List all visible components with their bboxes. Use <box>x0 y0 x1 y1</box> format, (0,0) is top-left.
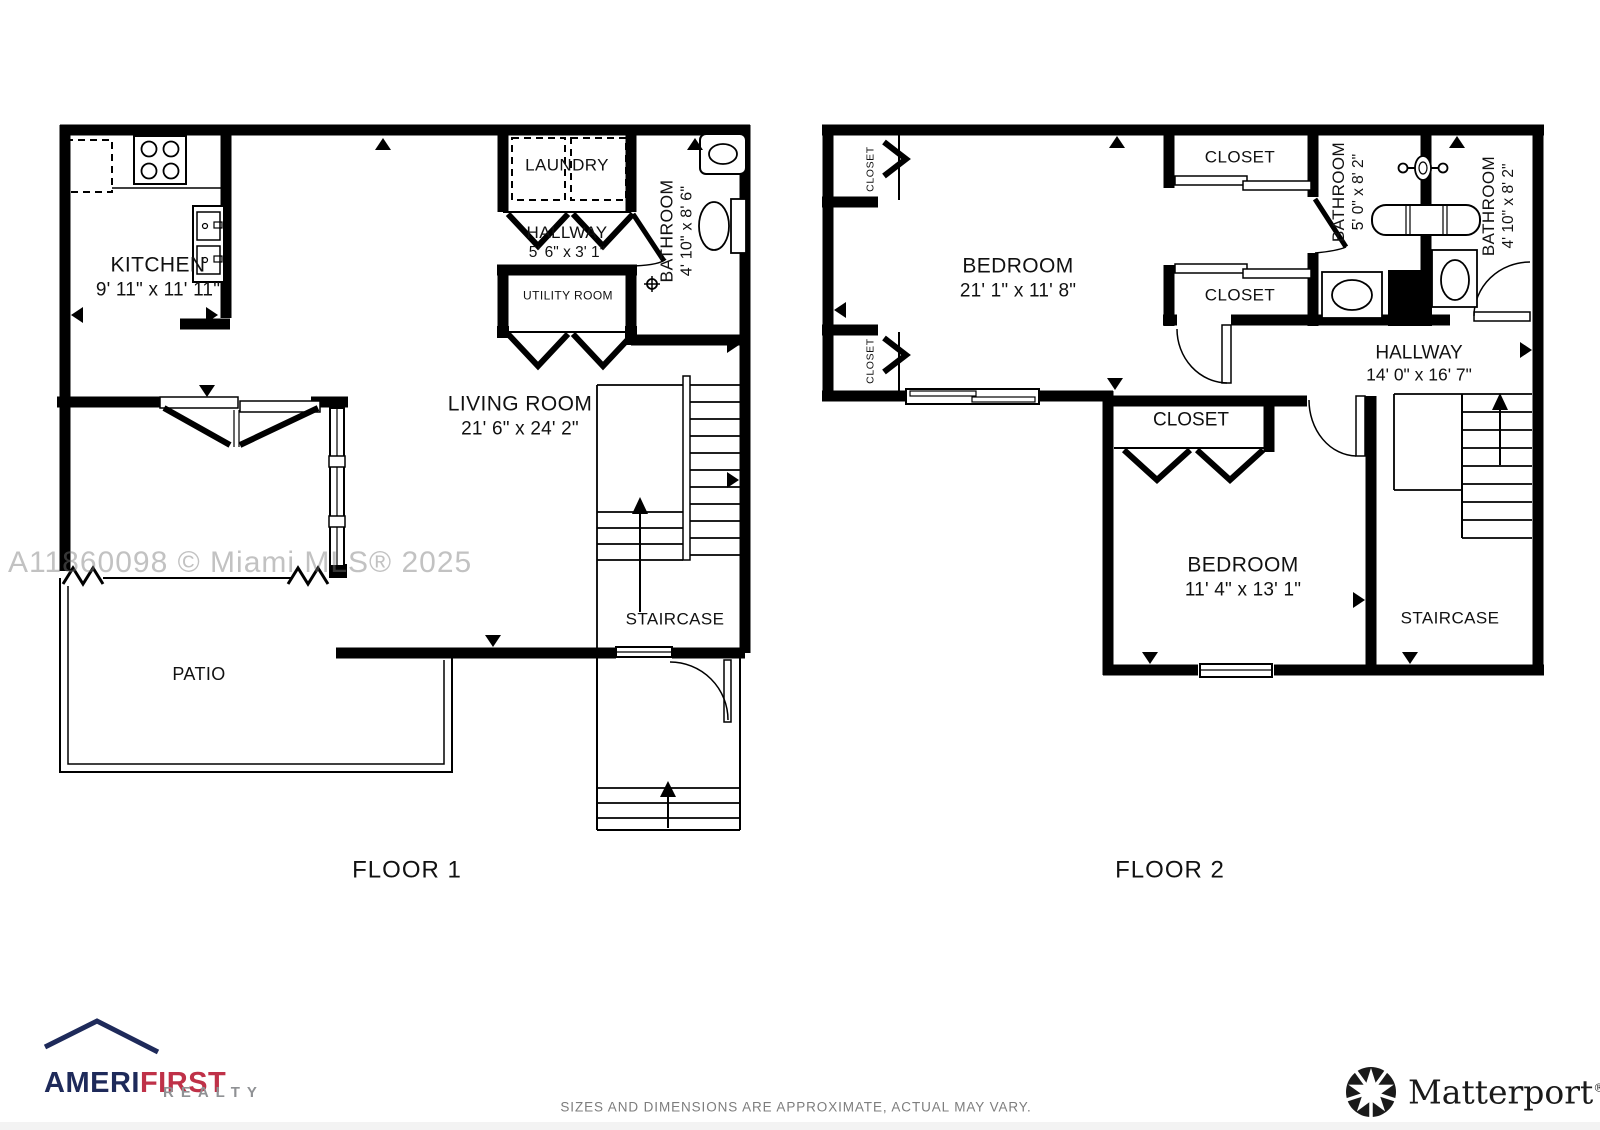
room-label-laundry: LAUNDRY <box>525 156 609 177</box>
arrow-head-icon <box>632 497 648 514</box>
door-leaf <box>1474 312 1530 321</box>
matterport-logo-name: Matterport <box>1408 1073 1593 1112</box>
entry-steps <box>597 647 740 830</box>
floor1-plan <box>57 125 750 830</box>
room-label-closet-top: CLOSET <box>1205 148 1275 169</box>
mls-watermark: A11860098 © Miami MLS® 2025 <box>8 546 472 580</box>
room-label-utility: UTILITY ROOM <box>523 289 613 304</box>
amerifirst-logo-realty: REALTY <box>163 1084 264 1101</box>
floor2-title: FLOOR 2 <box>1115 855 1225 884</box>
left-closets <box>884 132 906 396</box>
bottom-band <box>0 1122 1600 1130</box>
closet-door-icon <box>884 338 906 372</box>
room-label-bedroom1: BEDROOM 21' 1" x 11' 8" <box>960 254 1076 303</box>
window-icon <box>329 408 345 566</box>
closet-door-icon <box>884 142 906 176</box>
bedroom2-closet <box>1114 448 1264 480</box>
floorplan-page: KITCHEN 9' 11" x 11' 11" LAUNDRY HALLWAY… <box>0 0 1600 1130</box>
bifold-door-icon <box>1124 450 1263 480</box>
room-label-kitchen: KITCHEN 9' 11" x 11' 11" <box>96 253 220 302</box>
room-label-staircase-f2: STAIRCASE <box>1401 609 1500 630</box>
room-label-closet-left-top: CLOSET <box>865 146 878 192</box>
french-doors <box>160 397 320 447</box>
room-label-bathroom2-f2: BATHROOM 4' 10" x 8' 2" <box>1479 156 1519 256</box>
matterport-icon <box>1346 1067 1396 1118</box>
bathtub-icon <box>1372 205 1480 235</box>
toilet-tank <box>731 199 746 253</box>
floor1-staircase <box>597 376 745 648</box>
sliding-doors <box>1175 176 1311 278</box>
room-label-bathroom1-f2: BATHROOM 5' 0" x 8' 2" <box>1329 142 1369 242</box>
arrow-head-icon <box>660 781 676 797</box>
room-label-staircase-f1: STAIRCASE <box>626 610 725 631</box>
toilet-icon <box>699 202 729 250</box>
room-label-closet-mid: CLOSET <box>1205 286 1275 307</box>
counter-dashed <box>66 140 112 192</box>
room-label-bathroom-f1: BATHROOM 4' 10" x 8' 6" <box>657 179 698 282</box>
matterport-logo: Matterport® <box>1408 1073 1600 1112</box>
stove-icon <box>134 136 186 184</box>
door-leaf <box>1356 396 1365 456</box>
arrow-head-icon <box>1492 393 1508 410</box>
utility-room <box>497 326 637 366</box>
matterport-logo-reg: ® <box>1593 1082 1600 1095</box>
room-label-closet-left-bottom: CLOSET <box>865 338 878 384</box>
amerifirst-roof-icon <box>45 1021 158 1052</box>
room-label-hallway-f2: HALLWAY 14' 0" x 16' 7" <box>1366 342 1472 387</box>
window-icon <box>1200 664 1272 677</box>
floor2-plan <box>822 125 1544 677</box>
room-label-hallway-f1: HALLWAY 5' 6" x 3' 1" <box>527 223 608 263</box>
room-label-closet-bedroom2: CLOSET <box>1153 408 1229 431</box>
floor1-title: FLOOR 1 <box>352 855 462 884</box>
amerifirst-logo-ameri: AMERI <box>44 1067 140 1099</box>
disclaimer-text: SIZES AND DIMENSIONS ARE APPROXIMATE, AC… <box>560 1100 1031 1115</box>
room-label-patio: PATIO <box>172 664 225 686</box>
floor2-staircase <box>1394 393 1532 538</box>
room-label-bedroom2: BEDROOM 11' 4" x 13' 1" <box>1185 553 1301 602</box>
bifold-door-icon <box>508 334 633 366</box>
door-leaf <box>1222 325 1231 383</box>
room-label-living: LIVING ROOM 21' 6" x 24' 2" <box>448 392 592 441</box>
patio-outline <box>60 568 452 772</box>
plumbing-wall <box>1388 270 1432 326</box>
window-icon <box>906 389 1039 404</box>
